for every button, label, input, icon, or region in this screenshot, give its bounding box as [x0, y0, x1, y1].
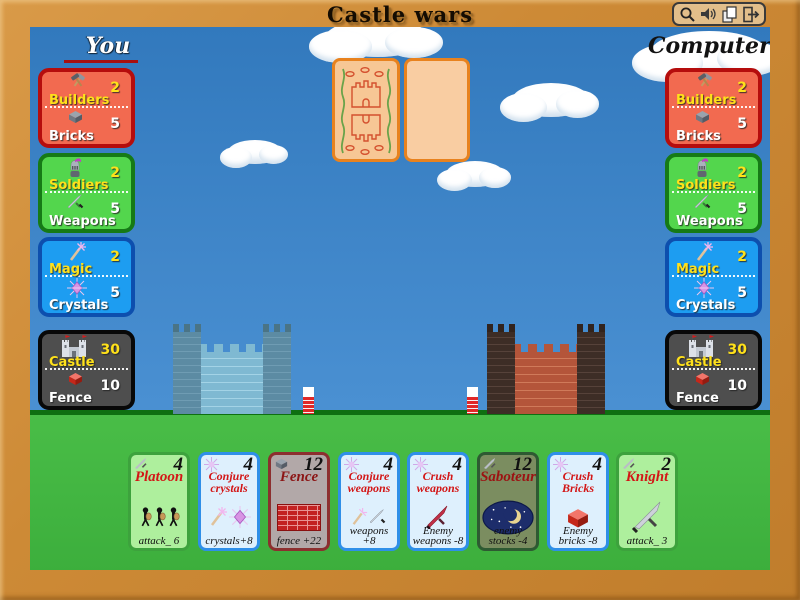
computer-castle-label: Castle [676, 355, 722, 370]
hand-card-conjure-crystals[interactable]: 4 Conjure crystals crystals+8 [198, 452, 260, 551]
window-controls [672, 2, 766, 26]
cloud [446, 161, 504, 187]
hand-card-conjure-weapons[interactable]: 4 Conjure weapons weapons +8 [338, 452, 400, 551]
exit-icon[interactable] [741, 6, 760, 23]
you-soldiers-label: Soldiers [49, 178, 108, 193]
hand-card-crush-weapons[interactable]: 4 Crush weapons Enemy weapons -8 [407, 452, 469, 551]
weapons-icon [67, 194, 87, 210]
you-castle-value: 30 [101, 342, 120, 358]
computer-soldiers-value: 2 [737, 165, 747, 181]
you-builders-label: Builders [49, 93, 109, 108]
draw-pile-card-back[interactable] [332, 58, 400, 162]
card-effect: attack_ 6 [132, 536, 186, 546]
computer-bricks-label: Bricks [676, 129, 721, 144]
computer-crystals-label: Crystals [676, 298, 735, 313]
computer-bricks-value: 5 [737, 116, 747, 132]
weapons-icon [694, 194, 714, 210]
you-soldiers-value: 2 [110, 165, 120, 181]
card-cost: 4 [453, 454, 463, 476]
you-fence-label: Fence [49, 391, 92, 406]
computer-weapons-label: Weapons [676, 214, 743, 229]
you-magic-panel: 2 Magic 5 Crystals [38, 237, 135, 317]
card-cost: 4 [384, 454, 394, 476]
computer-builders-panel: 2 Builders 5 Bricks [665, 68, 762, 148]
cloud [325, 27, 430, 57]
computer-soldiers-panel: 2 Soldiers 5 Weapons [665, 153, 762, 233]
cloud [512, 83, 590, 117]
soldier-icon [694, 158, 710, 180]
card-effect: Enemy weapons -8 [411, 526, 465, 546]
computer-castle-panel: 30 Castle 10 Fence [665, 330, 762, 410]
cloud [228, 140, 282, 164]
player-you-label: You [48, 33, 168, 59]
computer-magic-label: Magic [676, 262, 719, 277]
you-castle-panel: 30 Castle 10 Fence [38, 330, 135, 410]
discard-slot[interactable] [404, 58, 470, 162]
computer-builders-label: Builders [676, 93, 736, 108]
you-soldiers-panel: 2 Soldiers 5 Weapons [38, 153, 135, 233]
brick-wall-art [271, 499, 327, 535]
big-sword-art [619, 499, 675, 535]
card-cost: 4 [244, 454, 254, 476]
crystal-icon [344, 457, 359, 472]
sword-icon [483, 457, 498, 470]
hand-card-fence[interactable]: 12 Fence fence +22 [268, 452, 330, 551]
card-effect: crystals+8 [202, 536, 256, 546]
sword-icon [134, 457, 149, 470]
bricks-icon [67, 109, 84, 124]
builders-icon [694, 73, 716, 89]
you-weapons-label: Weapons [49, 214, 116, 229]
you-builders-panel: 2 Builders 5 Bricks [38, 68, 135, 148]
soldiers-art [131, 499, 187, 535]
card-effect: enemy stocks -4 [481, 526, 535, 546]
card-effect: Enemy bricks -8 [551, 526, 605, 546]
hand-card-saboteur[interactable]: 12 Saboteur enemy stocks -4 [477, 452, 539, 551]
speaker-icon[interactable] [699, 6, 718, 23]
you-magic-value: 2 [110, 249, 120, 265]
you-fence-value: 10 [101, 378, 120, 394]
sword-icon [622, 457, 637, 470]
game-board: You Computer [30, 27, 770, 570]
castle-icon [686, 335, 716, 357]
you-fence [303, 387, 314, 414]
hand-card-crush-bricks[interactable]: 4 Crush Bricks Enemy bricks -8 [547, 452, 609, 551]
card-cost: 12 [304, 454, 323, 476]
computer-fence-value: 10 [728, 378, 747, 394]
computer-magic-value: 2 [737, 249, 747, 265]
card-cost: 12 [513, 454, 532, 476]
crystal-icon [553, 457, 568, 472]
you-crystals-label: Crystals [49, 298, 108, 313]
pages-icon[interactable] [720, 6, 739, 23]
brick-icon [274, 457, 289, 470]
you-underline [64, 60, 138, 63]
card-cost: 2 [662, 454, 672, 476]
computer-soldiers-label: Soldiers [676, 178, 735, 193]
magic-wand-icon [67, 242, 87, 262]
crystal-icon [204, 457, 219, 472]
you-castle [173, 332, 291, 414]
computer-builders-value: 2 [737, 80, 747, 96]
computer-fence [467, 387, 478, 414]
bricks-icon [694, 109, 711, 124]
magic-wand-icon [694, 242, 714, 262]
crystal-icon [413, 457, 428, 472]
computer-castle-value: 30 [728, 342, 747, 358]
card-cost: 4 [593, 454, 603, 476]
you-builders-value: 2 [110, 80, 120, 96]
you-bricks-label: Bricks [49, 129, 94, 144]
fence-brick-icon [694, 371, 711, 386]
you-castle-label: Castle [49, 355, 95, 370]
crystal-icon [694, 278, 714, 298]
card-effect: fence +22 [272, 536, 326, 546]
card-cost: 4 [174, 454, 184, 476]
hand-card-platoon[interactable]: 4 Platoon attack_ 6 [128, 452, 190, 551]
you-magic-label: Magic [49, 262, 92, 277]
soldier-icon [67, 158, 83, 180]
player-computer-label: Computer [648, 33, 768, 59]
crystal-icon [67, 278, 87, 298]
castle-icon [59, 335, 89, 357]
fence-brick-icon [67, 371, 84, 386]
wand-crystal-art [201, 499, 257, 535]
you-bricks-value: 5 [110, 116, 120, 132]
hand-card-knight[interactable]: 2 Knight attack_ 3 [616, 452, 678, 551]
computer-crystals-value: 5 [737, 285, 747, 301]
computer-castle [487, 332, 605, 414]
computer-magic-panel: 2 Magic 5 Crystals [665, 237, 762, 317]
magnifier-icon[interactable] [678, 6, 697, 23]
card-effect: weapons +8 [342, 526, 396, 546]
card-effect: attack_ 3 [620, 536, 674, 546]
you-crystals-value: 5 [110, 285, 120, 301]
computer-fence-label: Fence [676, 391, 719, 406]
builders-icon [67, 73, 89, 89]
